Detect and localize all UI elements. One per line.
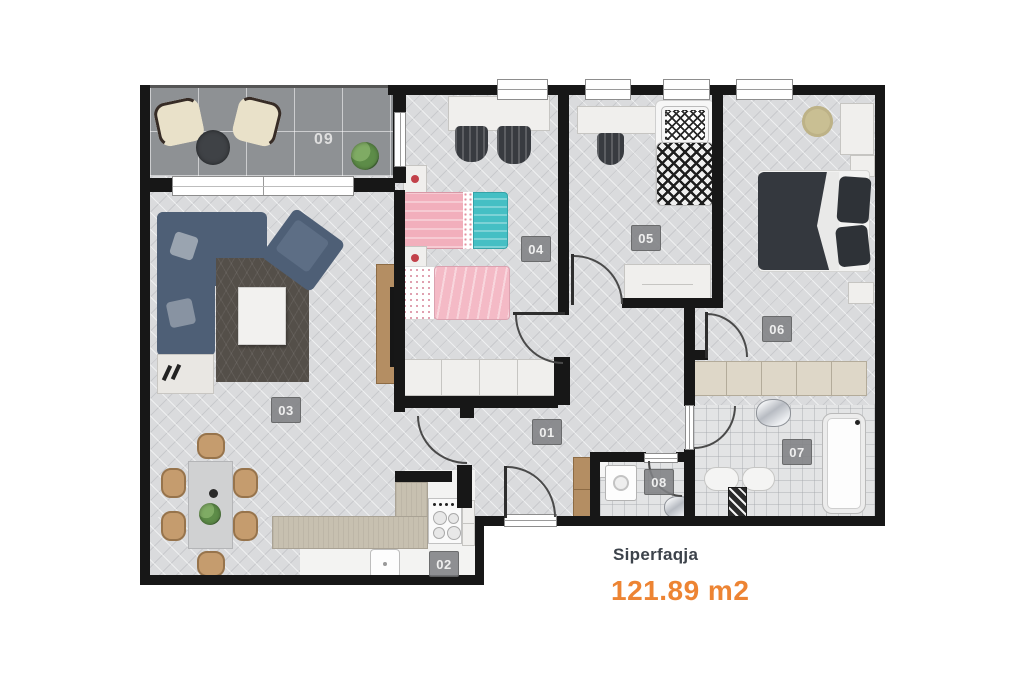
desk-chair bbox=[597, 133, 624, 165]
wall bbox=[394, 190, 405, 412]
dining-chair bbox=[161, 511, 186, 541]
wall bbox=[622, 298, 713, 308]
room-label-hallway: 01 bbox=[532, 419, 562, 445]
wall bbox=[353, 178, 395, 192]
room-label-master-bedroom: 06 bbox=[762, 316, 792, 342]
room-label-bedroom: 05 bbox=[631, 225, 661, 251]
wall bbox=[395, 471, 452, 482]
wall bbox=[558, 85, 569, 315]
window bbox=[663, 79, 710, 100]
desk-chair bbox=[497, 126, 531, 164]
room-label-kitchen: 02 bbox=[429, 551, 459, 577]
room04-door-leaf bbox=[513, 312, 565, 315]
kids-bed-pink bbox=[403, 192, 465, 249]
wall bbox=[388, 85, 885, 95]
single-bed-blanket bbox=[656, 142, 714, 206]
wall bbox=[875, 85, 885, 526]
wardrobe bbox=[691, 361, 867, 396]
kids-bed-teal bbox=[473, 192, 508, 249]
cabinet bbox=[840, 103, 874, 155]
dining-chair bbox=[197, 551, 225, 577]
room05-door-leaf bbox=[571, 254, 574, 305]
floor-plan: 01 02 03 04 05 06 07 08 09 Siperfaqja 12… bbox=[0, 0, 1024, 683]
wall bbox=[400, 396, 558, 408]
nightstand bbox=[848, 282, 874, 304]
window bbox=[736, 79, 793, 100]
kids-bed2-pillow bbox=[401, 266, 437, 320]
bath-toilet bbox=[756, 399, 791, 427]
wall bbox=[457, 465, 472, 508]
dresser bbox=[624, 264, 711, 299]
balcony-sliding-door bbox=[172, 176, 354, 196]
window bbox=[585, 79, 631, 100]
window bbox=[497, 79, 548, 100]
room-label-balcony: 09 bbox=[314, 131, 334, 149]
balcony-table bbox=[196, 130, 230, 165]
washing-machine bbox=[605, 465, 637, 501]
bathtub bbox=[822, 413, 866, 514]
dining-chair bbox=[161, 468, 186, 498]
dining-chair bbox=[233, 511, 258, 541]
single-bed-pillow bbox=[661, 106, 709, 144]
room-label-living: 03 bbox=[271, 397, 301, 423]
room-label-wc: 08 bbox=[644, 469, 674, 495]
closet bbox=[403, 359, 557, 396]
kitchen-counter-horizontal bbox=[272, 516, 428, 549]
desk-chair bbox=[455, 126, 488, 162]
wall bbox=[149, 178, 173, 192]
bed-pillow bbox=[835, 224, 871, 267]
desk bbox=[577, 106, 658, 134]
dining-chair bbox=[197, 433, 225, 459]
room-label-kids-bedroom: 04 bbox=[521, 236, 551, 262]
entrance-door-leaf bbox=[504, 466, 507, 518]
pouf bbox=[802, 106, 833, 137]
dining-centerpiece-plant bbox=[199, 503, 221, 525]
dining-chair bbox=[233, 468, 258, 498]
balcony-railing bbox=[150, 85, 395, 88]
kitchen-sink bbox=[370, 549, 400, 578]
dining-decor bbox=[209, 489, 218, 498]
wall bbox=[140, 85, 150, 585]
area-value: 121.89 m2 bbox=[611, 575, 749, 607]
window bbox=[394, 112, 406, 167]
wall bbox=[554, 357, 570, 405]
nightstand bbox=[403, 165, 427, 195]
sofa-pillow bbox=[166, 298, 197, 329]
room-label-bathroom: 07 bbox=[782, 439, 812, 465]
kids-bed2-duvet bbox=[434, 266, 510, 320]
room06-door-leaf bbox=[705, 312, 708, 358]
double-bed-duvet bbox=[758, 172, 837, 270]
wall bbox=[712, 85, 723, 308]
area-label: Siperfaqja bbox=[613, 545, 698, 565]
bathroom-door-panel bbox=[685, 405, 694, 450]
coffee-table bbox=[238, 287, 286, 345]
balcony-plant bbox=[351, 142, 379, 170]
wall bbox=[590, 452, 600, 517]
kitchen-counter-vertical bbox=[395, 482, 428, 517]
bed-pillow bbox=[836, 176, 871, 224]
